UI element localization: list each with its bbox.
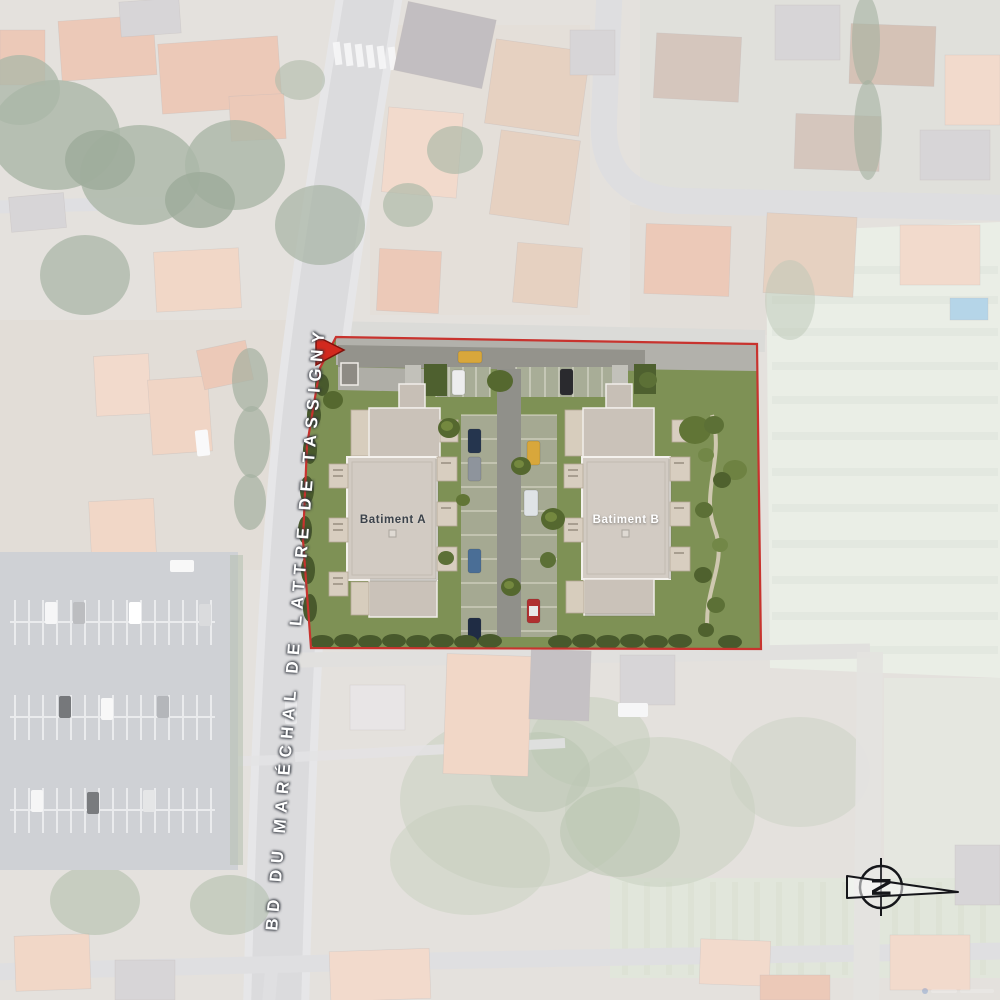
driveway	[497, 369, 521, 637]
compass-north-letter: N	[866, 877, 896, 897]
building-a-label: Batiment A	[360, 514, 426, 526]
aerial-site-plan: N BD DU MARÉCHAL DE LATTRE DE TASSIGNY B…	[0, 0, 1000, 1000]
car-yellow-icon	[458, 351, 482, 363]
car-gray-icon	[468, 457, 481, 481]
car-black-icon	[560, 369, 573, 395]
car-blue-icon	[468, 549, 481, 573]
site-plan-rendering	[298, 336, 761, 649]
car-white-icon	[452, 370, 465, 395]
scene: N	[0, 0, 1000, 1000]
van-white-icon	[524, 490, 538, 516]
car-darkblue-icon	[468, 429, 481, 453]
bike-shelter	[341, 363, 358, 385]
building-b-label: Batiment B	[593, 514, 660, 526]
